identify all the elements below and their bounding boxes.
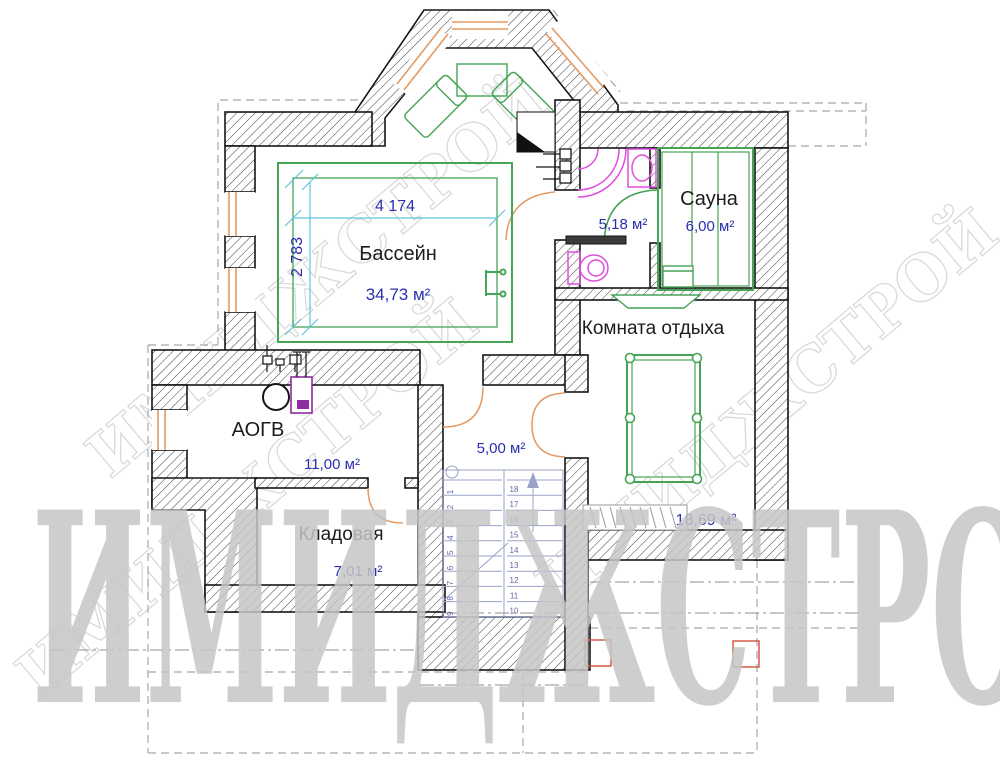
sauna-area-label: 6,00 м² <box>686 218 735 235</box>
bench-icon <box>612 295 700 308</box>
watermark-main: ИМИДЖСТРОЙ <box>32 439 1000 765</box>
pool-room-label: Бассейн <box>359 243 437 265</box>
hall-lounge-wall-upper <box>565 355 588 392</box>
bath-partition-wall <box>566 236 626 244</box>
pool-area-label: 34,73 м² <box>366 285 431 304</box>
bath-top-wall <box>580 112 788 148</box>
bath-area-label: 5,18 м² <box>599 216 648 233</box>
boiler-window <box>152 410 187 450</box>
bath-radiator-icon <box>536 149 571 183</box>
pool-bottom-wall-left <box>152 350 420 385</box>
pool-left-wall-pier <box>225 236 255 268</box>
pool-window-lower <box>225 268 255 312</box>
lounge-double-door-top-arc <box>532 393 565 425</box>
corner-shower-icon <box>578 149 626 197</box>
bay-window-top <box>452 11 508 39</box>
boiler-tank-icon <box>263 384 289 410</box>
pool-bath-door-arc <box>506 192 555 240</box>
pool-width-dimension: 4 174 <box>375 198 415 215</box>
pool-left-wall-lower <box>225 312 255 355</box>
boiler-unit-icon <box>291 377 312 413</box>
pool-window-upper <box>225 192 255 236</box>
sauna-stove-icon <box>663 266 693 287</box>
lounge-room-label: Комната отдыха <box>582 318 725 339</box>
boiler-left-wall-upper <box>152 385 187 410</box>
pool-top-wall <box>225 112 372 146</box>
lounge-double-door-bottom-arc <box>532 425 565 457</box>
boiler-room-label: АОГВ <box>232 419 285 441</box>
pool-ladder-icon <box>486 270 506 297</box>
hall-door-arc <box>443 387 483 427</box>
sauna-room-label: Сауна <box>680 188 739 210</box>
pool-bottom-wall-right <box>483 355 570 385</box>
floor-plan-canvas: ИМИДЖСТРОЙ ИМИДЖСТРОЙ ИМИДЖСТРОЙ <box>0 0 1000 768</box>
pool-left-wall-upper <box>225 146 255 192</box>
pool-height-dimension: 2 783 <box>289 237 306 277</box>
bay-cabinet-icon <box>517 112 555 152</box>
